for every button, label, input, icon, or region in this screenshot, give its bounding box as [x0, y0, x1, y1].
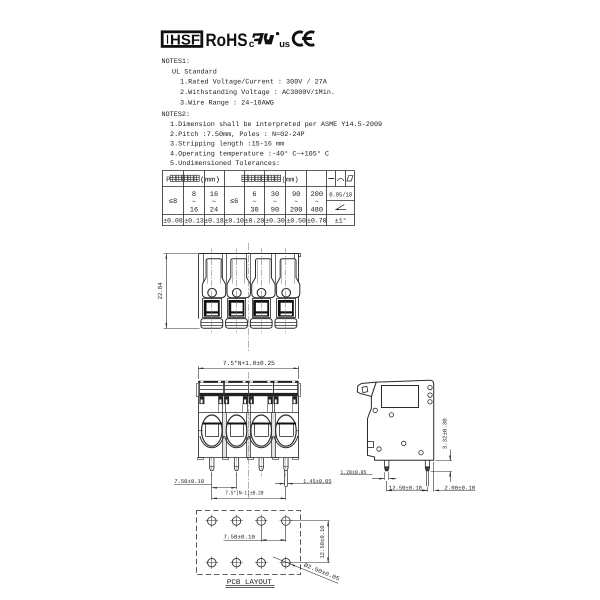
svg-text:3.Stripping length :15-16 mm: 3.Stripping length :15-16 mm [170, 141, 284, 149]
svg-text:0.05/10: 0.05/10 [329, 191, 352, 198]
svg-text:UL Standard: UL Standard [172, 68, 217, 76]
svg-text:~: ~ [192, 198, 196, 206]
svg-text:3.32±0.30: 3.32±0.30 [441, 418, 448, 450]
svg-text:±0.70: ±0.70 [307, 217, 327, 224]
svg-text:200: 200 [290, 206, 303, 214]
svg-text:24: 24 [210, 206, 218, 214]
svg-text:HSF: HSF [170, 32, 200, 48]
svg-text:≤8: ≤8 [169, 198, 177, 206]
svg-text:±0.10: ±0.10 [224, 217, 244, 224]
svg-text:±0.18: ±0.18 [204, 217, 224, 224]
svg-text:±0.20: ±0.20 [245, 217, 265, 224]
svg-text:30: 30 [250, 206, 258, 214]
svg-text:~: ~ [273, 198, 277, 206]
svg-text:±0.50: ±0.50 [286, 217, 306, 224]
svg-text:5.Undimensioned Tolerances:: 5.Undimensioned Tolerances: [170, 160, 280, 168]
svg-text:2.Withstanding Voltage : AC300: 2.Withstanding Voltage : AC3000V/1Min. [180, 89, 335, 97]
svg-text:±0.08: ±0.08 [163, 217, 183, 224]
svg-text:~: ~ [315, 198, 319, 206]
svg-text:(mm): (mm) [282, 176, 299, 185]
svg-text:1.20±0.05: 1.20±0.05 [340, 469, 366, 476]
svg-text:~: ~ [212, 198, 216, 206]
svg-text:7.50±0.10: 7.50±0.10 [174, 478, 205, 485]
svg-text:22.84: 22.84 [157, 282, 164, 299]
svg-text:480: 480 [310, 206, 323, 214]
svg-text:4.Operating temperature :-40°: 4.Operating temperature :-40° C~+105° C [170, 150, 329, 158]
svg-text:NOTES1:: NOTES1: [162, 58, 191, 66]
svg-text:7.5*(N-1)±0.20: 7.5*(N-1)±0.20 [225, 490, 264, 497]
svg-text:±1°: ±1° [335, 217, 347, 224]
svg-text:7.50±0.10: 7.50±0.10 [224, 533, 256, 540]
svg-text:us: us [279, 38, 289, 49]
svg-text:≤6: ≤6 [230, 198, 238, 206]
svg-text:NOTES2:: NOTES2: [162, 111, 191, 119]
svg-text:1.Dimension shall be interpret: 1.Dimension shall be interpreted per ASM… [170, 121, 382, 129]
svg-text:PCB LAYOUT: PCB LAYOUT [227, 579, 273, 587]
svg-text:±0.13: ±0.13 [184, 217, 204, 224]
svg-text:90: 90 [271, 206, 279, 214]
svg-text:3.Wire Range : 24~10AWG: 3.Wire Range : 24~10AWG [180, 99, 274, 107]
svg-text:±0.30: ±0.30 [265, 217, 285, 224]
svg-text:12.50±0.10: 12.50±0.10 [319, 525, 326, 559]
svg-text:2.Pitch :7.50mm, Poles : N=02-: 2.Pitch :7.50mm, Poles : N=02-24P [170, 131, 305, 139]
svg-text:~: ~ [252, 198, 256, 206]
svg-text:1.Rated Voltage/Current : 300V: 1.Rated Voltage/Current : 300V / 27A [180, 79, 328, 87]
svg-text:~: ~ [294, 198, 298, 206]
svg-text:c: c [249, 39, 255, 50]
svg-text:7.5*N+1.0±0.25: 7.5*N+1.0±0.25 [223, 360, 275, 367]
svg-text:RoHS: RoHS [206, 30, 248, 50]
svg-text:16: 16 [190, 206, 198, 214]
svg-text:(mm): (mm) [200, 176, 221, 185]
